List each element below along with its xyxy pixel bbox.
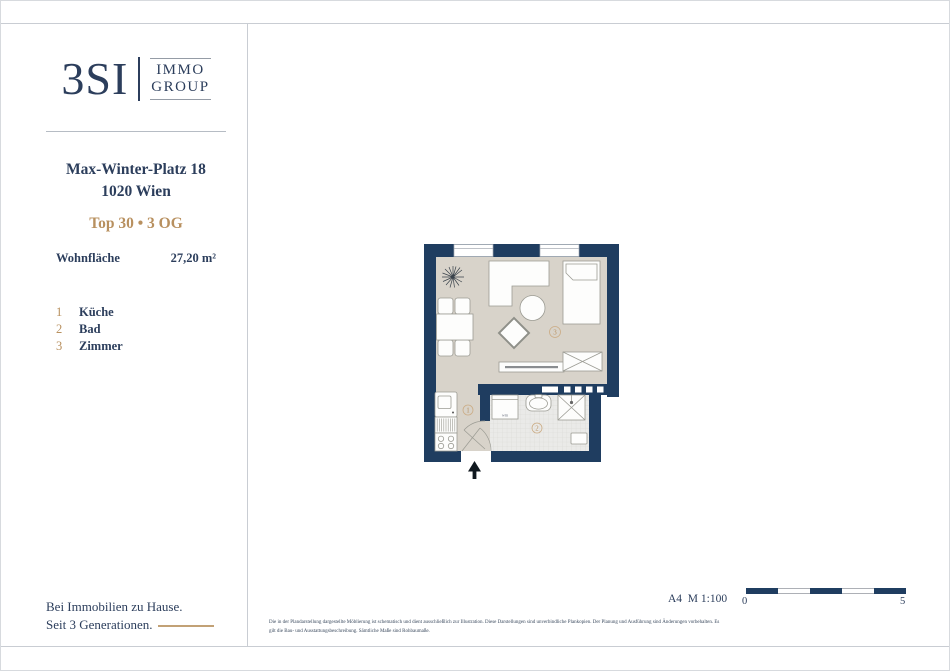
wardrobe: [563, 352, 602, 371]
area-label: Wohnfläche: [56, 251, 120, 266]
bottom-frame-line: [1, 646, 949, 647]
dining-set: [437, 298, 474, 356]
legend-item-bad: 2 Bad: [56, 321, 226, 338]
brand-tagline: Bei Immobilien zu Hause. Seit 3 Generati…: [46, 598, 182, 634]
scale-end-label: 5: [900, 596, 905, 607]
tagline-accent-dash: [158, 625, 214, 627]
window-right: [540, 245, 579, 257]
entrance-arrow-icon: [468, 461, 481, 479]
bed: [563, 261, 600, 324]
disclaimer: Die in der Plandarstellung dargestellte …: [269, 618, 747, 636]
sidebar-divider-line: [247, 23, 248, 646]
stove: [435, 433, 457, 451]
logo-wordmark: IMMO GROUP: [150, 58, 210, 101]
shower: [558, 395, 585, 420]
round-table: [520, 296, 545, 321]
legend-num: 3: [56, 338, 79, 355]
legend-label: Küche: [79, 304, 114, 321]
tagline-line-1: Bei Immobilien zu Hause.: [46, 598, 182, 616]
sidebar: 3SI IMMO GROUP Max-Winter-Platz 18 1020 …: [46, 46, 226, 355]
logo-separator: [138, 57, 140, 101]
legend-item-zimmer: 3 Zimmer: [56, 338, 226, 355]
area-value: 27,20 m²: [171, 251, 216, 266]
unit-line: Top 30 • 3 OG: [46, 215, 226, 233]
address-line-1: Max-Winter-Platz 18: [46, 159, 226, 181]
bath-sink: [526, 395, 551, 411]
legend-num: 1: [56, 304, 79, 321]
logo-3si-text: 3SI: [61, 56, 128, 102]
floor-plan-drawing: 1 2 3 wm: [424, 244, 619, 479]
top-frame-line: [1, 23, 949, 24]
svg-text:1: 1: [466, 407, 470, 415]
kitchen-counter: [435, 417, 457, 433]
legend-item-kueche: 1 Küche: [56, 304, 226, 321]
room-legend: 1 Küche 2 Bad 3 Zimmer: [46, 304, 226, 355]
radiator: [571, 433, 587, 444]
scale-start-label: 0: [742, 596, 747, 607]
legend-label: Zimmer: [79, 338, 123, 355]
scale-bar: [746, 588, 906, 594]
svg-text:3: 3: [553, 329, 557, 337]
kitchen-sink: [435, 392, 457, 417]
disclaimer-line-2: gilt die Bau- und Ausstattungsbeschreibu…: [269, 627, 747, 636]
floor-plan-sheet: 3SI IMMO GROUP Max-Winter-Platz 18 1020 …: [0, 0, 950, 671]
property-address: Max-Winter-Platz 18 1020 Wien: [46, 159, 226, 203]
scale-note: A4 M 1:100: [668, 593, 727, 605]
address-line-2: 1020 Wien: [46, 181, 226, 203]
legend-num: 2: [56, 321, 79, 338]
tv-sideboard: [499, 362, 564, 372]
logo-rule: [46, 131, 226, 132]
svg-text:2: 2: [535, 425, 539, 433]
legend-label: Bad: [79, 321, 101, 338]
logo-word-group: GROUP: [151, 79, 209, 96]
living-area-row: Wohnfläche 27,20 m²: [46, 251, 226, 266]
brand-logo: 3SI IMMO GROUP: [46, 56, 226, 102]
disclaimer-line-1: Die in der Plandarstellung dargestellte …: [269, 618, 747, 627]
logo-word-immo: IMMO: [151, 62, 209, 79]
window-left: [454, 245, 493, 257]
washing-machine-label: wm: [502, 413, 509, 418]
entrance-opening: [461, 451, 491, 462]
